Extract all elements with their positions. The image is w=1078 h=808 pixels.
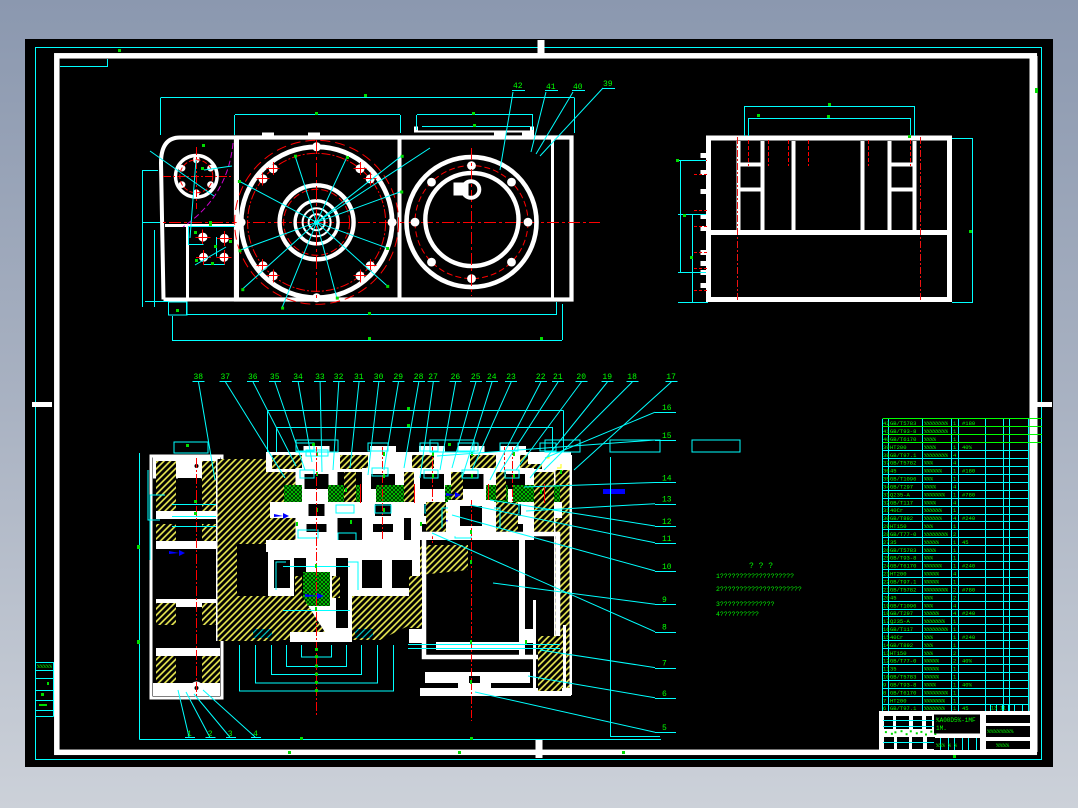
svg-text:13: 13 (883, 650, 890, 657)
svg-text:16: 16 (662, 404, 672, 413)
svg-text:25: 25 (883, 555, 890, 562)
svg-text:%%% % %: %%% % % (936, 743, 957, 749)
svg-text:%%%%%%%: %%%%%%% (924, 698, 945, 704)
svg-text:33: 33 (883, 491, 890, 498)
svg-text:%%%%%%%%: %%%%%%%% (924, 532, 948, 538)
svg-text:%%%: %%% (924, 477, 933, 483)
svg-text:GB/T5783: GB/T5783 (890, 674, 916, 681)
svg-text:HT150: HT150 (890, 523, 907, 530)
svg-text:%%%%%: %%%%% (924, 572, 939, 578)
svg-text:Q235-A: Q235-A (890, 491, 911, 498)
svg-text:30: 30 (374, 373, 384, 382)
svg-text:%%%: %%% (924, 461, 933, 467)
svg-text:? ? ?: ? ? ? (749, 562, 773, 571)
svg-text:GB/T5783: GB/T5783 (890, 547, 916, 554)
svg-text:3??????????????: 3?????????????? (716, 601, 775, 608)
svg-text:28: 28 (414, 373, 424, 382)
svg-text:35: 35 (890, 539, 897, 546)
svg-text:25: 25 (471, 373, 481, 382)
svg-text:%%%%%%: %%%%%% (924, 469, 942, 475)
svg-text:36: 36 (248, 373, 258, 382)
svg-text:42: 42 (883, 420, 890, 427)
svg-text:38: 38 (883, 452, 890, 459)
svg-text:37: 37 (221, 373, 231, 382)
svg-text:7: 7 (662, 660, 667, 669)
svg-text:%%%: %%% (924, 643, 933, 649)
svg-text:%%%: %%% (924, 635, 933, 641)
svg-text:40%: 40% (962, 681, 973, 688)
svg-text:4??????????: 4?????????? (716, 611, 759, 618)
svg-text:45: 45 (890, 594, 897, 601)
svg-text:29: 29 (394, 373, 404, 382)
svg-text:GB/T77-0: GB/T77-0 (890, 658, 916, 665)
svg-text:GB/T1096: GB/T1096 (890, 476, 916, 483)
svg-text:12: 12 (883, 658, 890, 665)
svg-text:31: 31 (354, 373, 364, 382)
svg-text:%%%%: %%%% (924, 485, 936, 491)
svg-text:#240: #240 (962, 634, 975, 641)
svg-text:13: 13 (662, 496, 672, 505)
svg-text:35: 35 (890, 666, 897, 673)
svg-text:GB/T93-8: GB/T93-8 (890, 555, 916, 562)
svg-text:GB/T297: GB/T297 (890, 610, 913, 617)
svg-text:GB/T6170: GB/T6170 (890, 436, 916, 443)
svg-text:45: 45 (962, 539, 969, 546)
svg-text:23: 23 (883, 571, 890, 578)
svg-text:30: 30 (883, 515, 890, 522)
svg-text:GB/T5782: GB/T5782 (890, 460, 916, 467)
svg-text:HT150: HT150 (890, 650, 907, 657)
svg-text:10: 10 (662, 563, 672, 572)
svg-text:28: 28 (883, 531, 890, 538)
svg-text:36: 36 (883, 468, 890, 475)
svg-text:8: 8 (883, 689, 886, 696)
svg-text:6: 6 (662, 690, 667, 699)
svg-text:16: 16 (883, 626, 890, 633)
svg-text:33: 33 (315, 373, 325, 382)
svg-text:27: 27 (428, 373, 438, 382)
svg-text:#180: #180 (962, 420, 975, 427)
svg-text:40Cr: 40Cr (890, 634, 903, 641)
svg-text:%%%: %%% (924, 603, 933, 609)
svg-text:HT200: HT200 (890, 571, 907, 578)
svg-text:GB/T6170: GB/T6170 (890, 563, 916, 570)
svg-text:GB/T77-0: GB/T77-0 (890, 531, 916, 538)
svg-text:GB/T93-8: GB/T93-8 (890, 681, 916, 688)
svg-text:27: 27 (883, 539, 890, 546)
svg-text:17: 17 (666, 373, 676, 382)
svg-text:2: 2 (953, 594, 956, 601)
svg-text:2: 2 (953, 650, 956, 657)
svg-text:%%%: %%% (924, 556, 933, 562)
svg-text:GB/T5783: GB/T5783 (890, 420, 916, 427)
svg-text:%%%: %%% (924, 524, 933, 530)
svg-text:%%%%%%: %%%%%% (924, 508, 942, 514)
svg-text:%%%%%: %%%%% (924, 580, 939, 586)
svg-text:2: 2 (953, 531, 956, 538)
svg-text:%%%%%: %%%%% (924, 611, 939, 617)
svg-text:%%%%: %%%% (924, 548, 936, 554)
svg-text:35: 35 (270, 373, 280, 382)
svg-text:%%%%: %%%% (924, 682, 936, 688)
svg-text:40%: 40% (962, 658, 973, 665)
svg-text:%%%%%: %%%%% (924, 659, 939, 665)
svg-text:GB/T1096: GB/T1096 (890, 602, 916, 609)
svg-text:8: 8 (662, 624, 667, 633)
svg-text:10: 10 (883, 674, 890, 681)
svg-text:26: 26 (883, 547, 890, 554)
svg-text:38: 38 (194, 373, 204, 382)
svg-text:%A00D5%-1MF: %A00D5%-1MF (936, 717, 976, 724)
svg-text:%%%%%%%%: %%%%%%%% (924, 690, 948, 696)
svg-text:37: 37 (883, 460, 890, 467)
svg-text:#780: #780 (962, 491, 975, 498)
svg-text:24: 24 (487, 373, 497, 382)
svg-text:2: 2 (953, 658, 956, 665)
svg-text:20: 20 (576, 373, 586, 382)
svg-text:18: 18 (883, 610, 890, 617)
svg-text:%%%%%: %%%%% (924, 540, 939, 546)
svg-text:40%: 40% (962, 444, 973, 451)
svg-text:39: 39 (603, 80, 613, 89)
svg-text:GB/T117: GB/T117 (890, 499, 913, 506)
svg-text:%%%%%%%%: %%%%%%%% (987, 728, 1014, 735)
svg-text:26: 26 (451, 373, 461, 382)
svg-text:GB/T892: GB/T892 (890, 515, 913, 522)
svg-text:Q235-A: Q235-A (890, 618, 911, 625)
svg-text:%%%%%%%%: %%%%%%%% (924, 421, 948, 427)
svg-text:%%%%%%: %%%%%% (924, 564, 942, 570)
svg-text:19: 19 (883, 602, 890, 609)
svg-text:42: 42 (513, 82, 523, 91)
svg-text:45: 45 (890, 468, 897, 475)
svg-text:GB/T297: GB/T297 (890, 484, 913, 491)
svg-text:39: 39 (883, 444, 890, 451)
svg-text:13 11: 13 11 (991, 706, 1006, 712)
svg-text:#780: #780 (962, 586, 975, 593)
svg-text:23: 23 (506, 373, 516, 382)
svg-text:2: 2 (953, 586, 956, 593)
svg-text:%%%%%%%%: %%%%%%%% (924, 627, 948, 633)
svg-text:32: 32 (883, 499, 890, 506)
svg-text:%%%%: %%%% (924, 437, 936, 443)
svg-text:HT200: HT200 (890, 697, 907, 704)
svg-text:40Cr: 40Cr (890, 507, 903, 514)
svg-text:%%%%%%%: %%%%%%% (924, 619, 945, 625)
svg-text:22: 22 (883, 579, 890, 586)
svg-text:20: 20 (883, 594, 890, 601)
svg-text:34: 34 (293, 373, 303, 382)
svg-text:15: 15 (883, 634, 890, 641)
svg-text:GB/T97.1: GB/T97.1 (890, 452, 917, 459)
svg-text:9: 9 (883, 681, 886, 688)
svg-text:5: 5 (662, 724, 667, 733)
svg-text:%%%%%: %%%%% (924, 667, 939, 673)
svg-text:GB/T97.1: GB/T97.1 (890, 579, 917, 586)
svg-text:1???????????????????: 1??????????????????? (716, 573, 794, 580)
svg-text:18: 18 (627, 373, 637, 382)
svg-text:40: 40 (883, 436, 890, 443)
svg-text:#180: #180 (962, 468, 975, 475)
svg-text:11: 11 (662, 535, 672, 544)
svg-text:%%%%%%%: %%%%%%% (924, 492, 945, 498)
svg-text:19: 19 (602, 373, 612, 382)
svg-text:7: 7 (883, 697, 886, 704)
svg-text:%%%%%%: %%%%%% (924, 516, 942, 522)
svg-text:%%%%: %%%% (996, 742, 1010, 749)
svg-text:%%%: %%% (924, 595, 933, 601)
svg-text:%%%%%%%%: %%%%%%%% (924, 587, 948, 593)
svg-text:9: 9 (662, 596, 667, 605)
svg-text:%%%%: %%%% (924, 500, 936, 506)
svg-text:GB/T5782: GB/T5782 (890, 586, 916, 593)
svg-text:15: 15 (662, 432, 672, 441)
svg-text:%%%: %%% (924, 651, 933, 657)
svg-text:17: 17 (883, 618, 890, 625)
svg-text:#240: #240 (962, 563, 975, 570)
svg-text:2?????????????????????: 2????????????????????? (716, 586, 802, 593)
svg-text:%%%%%%%%: %%%%%%%% (924, 429, 948, 435)
svg-text:29: 29 (883, 523, 890, 530)
svg-text:32: 32 (334, 373, 344, 382)
svg-text:GB/T93-8: GB/T93-8 (890, 428, 916, 435)
svg-text:HT200: HT200 (890, 444, 907, 451)
svg-text:%%%%%: %%%%% (924, 675, 939, 681)
svg-text:%%%%: %%%% (924, 445, 936, 451)
svg-text:#240: #240 (962, 515, 975, 522)
svg-text:35: 35 (883, 476, 890, 483)
svg-text:22: 22 (536, 373, 546, 382)
svg-text:12: 12 (662, 518, 672, 527)
svg-text:GB/T892: GB/T892 (890, 642, 913, 649)
svg-text:%%%%%%%%: %%%%%%%% (924, 453, 948, 459)
svg-text:#240: #240 (962, 610, 975, 617)
svg-text:21: 21 (553, 373, 563, 382)
svg-text:GB/T117: GB/T117 (890, 626, 913, 633)
svg-text:1M.: 1M. (936, 725, 947, 732)
svg-text:GB/T6170: GB/T6170 (890, 689, 916, 696)
svg-text:%%%%%: %%%%% (37, 664, 52, 670)
